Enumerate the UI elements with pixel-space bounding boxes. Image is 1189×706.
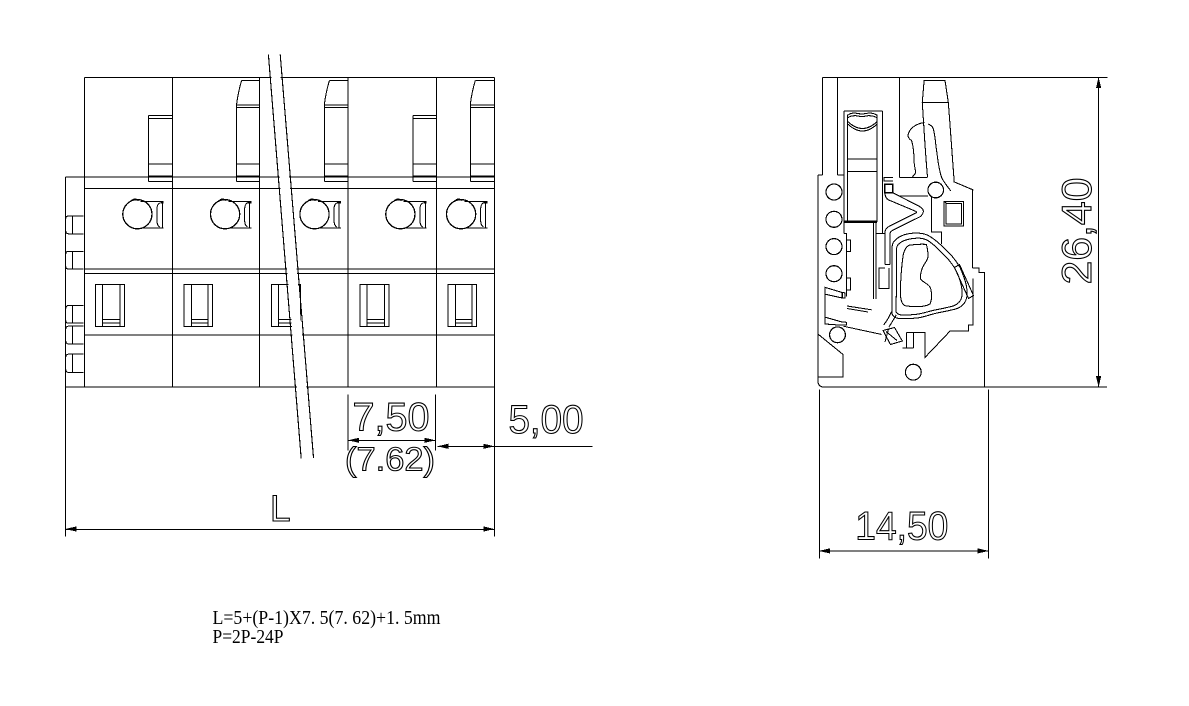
svg-text:5,00: 5,00 bbox=[509, 398, 584, 442]
svg-text:P=2P-24P: P=2P-24P bbox=[213, 626, 284, 648]
svg-text:14,50: 14,50 bbox=[855, 505, 948, 549]
svg-text:7,50: 7,50 bbox=[353, 396, 430, 440]
svg-text:(7.62): (7.62) bbox=[345, 441, 435, 478]
svg-text:L: L bbox=[270, 488, 291, 529]
svg-text:26,40: 26,40 bbox=[1053, 178, 1100, 285]
